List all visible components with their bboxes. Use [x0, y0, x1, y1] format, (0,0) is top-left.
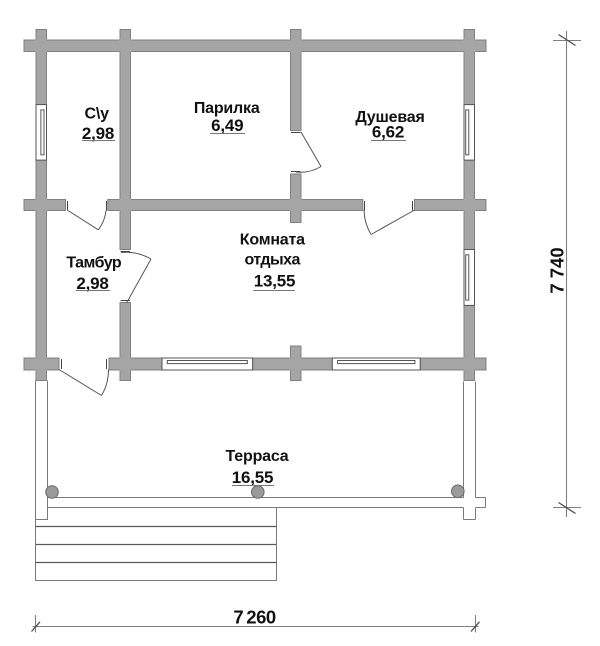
svg-text:7 740: 7 740: [547, 247, 568, 293]
svg-text:Комната: Комната: [240, 232, 305, 249]
svg-text:Тамбур: Тамбур: [66, 255, 122, 272]
svg-text:7 260: 7 260: [233, 607, 276, 628]
svg-text:Терраса: Терраса: [226, 448, 289, 465]
svg-text:16,55: 16,55: [232, 468, 274, 487]
svg-text:Парилка: Парилка: [194, 100, 260, 117]
svg-text:6,49: 6,49: [211, 116, 243, 135]
svg-text:13,55: 13,55: [254, 272, 296, 291]
svg-text:С\у: С\у: [85, 106, 110, 123]
svg-text:отдыха: отдыха: [245, 252, 301, 269]
svg-text:6,62: 6,62: [372, 123, 404, 142]
